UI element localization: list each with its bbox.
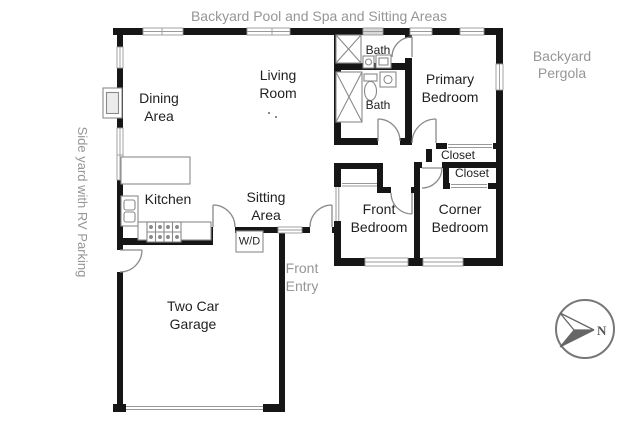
stove-icon — [147, 222, 181, 242]
walls — [113, 28, 503, 412]
shower-icon — [336, 35, 361, 63]
compass-north-letter: N — [597, 323, 607, 338]
ceiling-marks — [268, 112, 277, 118]
sink-icon — [376, 55, 391, 68]
fireplace-icon — [103, 88, 122, 118]
shower-icon — [336, 72, 362, 122]
floor-plan: N Backyard Pool and Spa and Sitting Area… — [0, 0, 640, 427]
kitchen-fixtures — [121, 157, 211, 242]
bath-fixtures — [336, 35, 396, 122]
sink-icon — [380, 72, 396, 87]
floor-plan-drawing: N — [0, 0, 640, 427]
toilet-icon — [364, 74, 377, 101]
washer-dryer-box — [236, 231, 263, 252]
toilet-icon — [363, 56, 374, 68]
compass-north-icon: N — [556, 300, 614, 358]
